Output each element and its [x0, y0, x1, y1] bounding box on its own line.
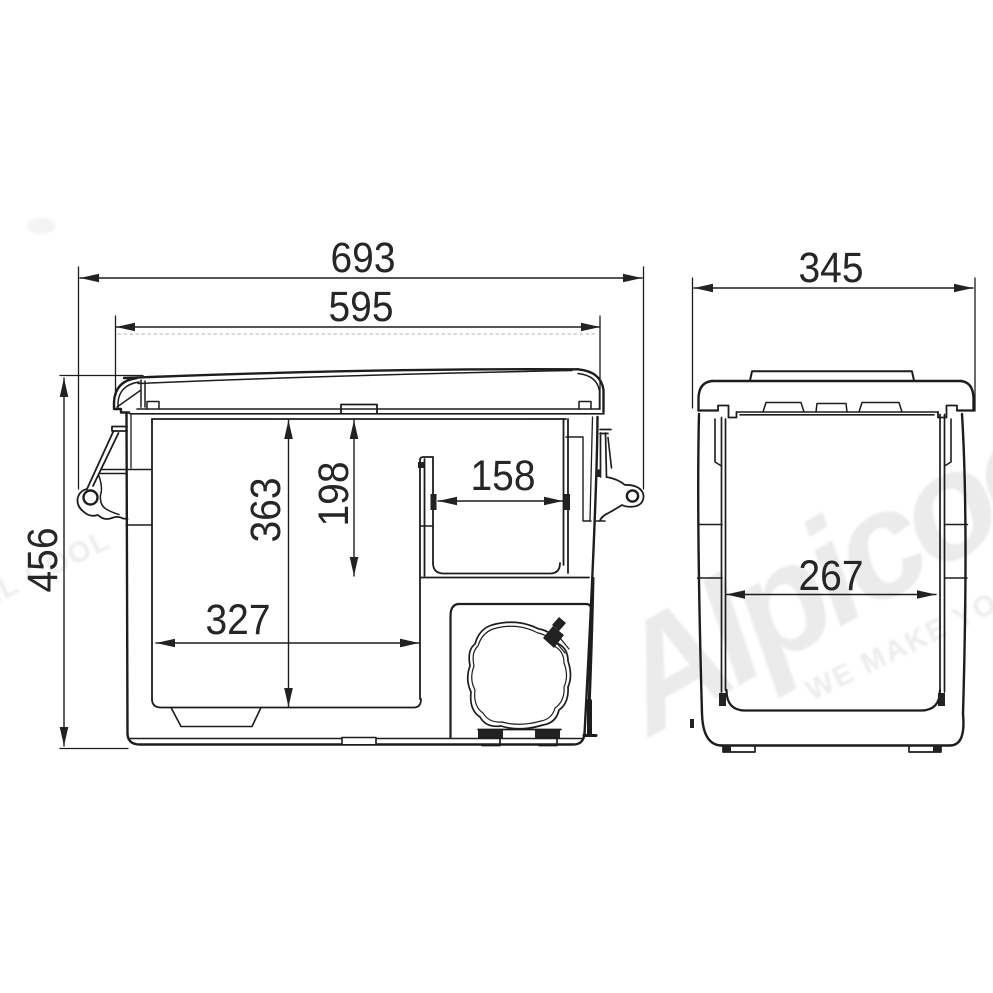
svg-text:345: 345 [799, 245, 864, 292]
svg-text:327: 327 [206, 597, 271, 644]
svg-text:456: 456 [20, 528, 67, 593]
svg-text:198: 198 [311, 462, 358, 527]
svg-text:693: 693 [331, 235, 396, 282]
svg-text:267: 267 [799, 553, 864, 600]
svg-text:595: 595 [329, 284, 394, 331]
svg-text:363: 363 [243, 478, 290, 543]
svg-text:158: 158 [471, 453, 536, 500]
